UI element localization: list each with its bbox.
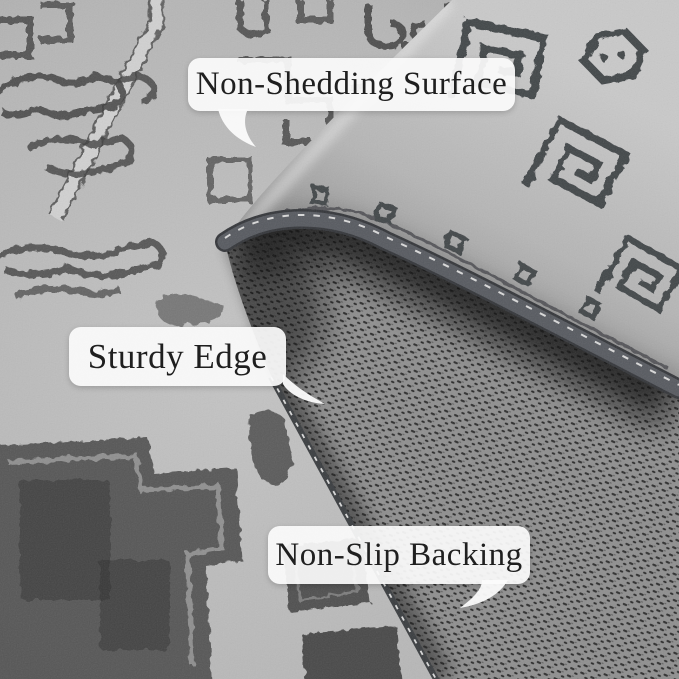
callout-label: Sturdy Edge xyxy=(88,337,268,377)
product-image: Non-Shedding Surface Sturdy Edge Non-Sli… xyxy=(0,0,679,679)
callout-sturdy-edge: Sturdy Edge xyxy=(69,327,286,386)
callout-label: Non-Slip Backing xyxy=(275,537,522,574)
callout-label: Non-Shedding Surface xyxy=(196,66,508,103)
callout-non-shedding-surface: Non-Shedding Surface xyxy=(188,58,515,111)
callout-non-slip-backing: Non-Slip Backing xyxy=(268,526,530,584)
